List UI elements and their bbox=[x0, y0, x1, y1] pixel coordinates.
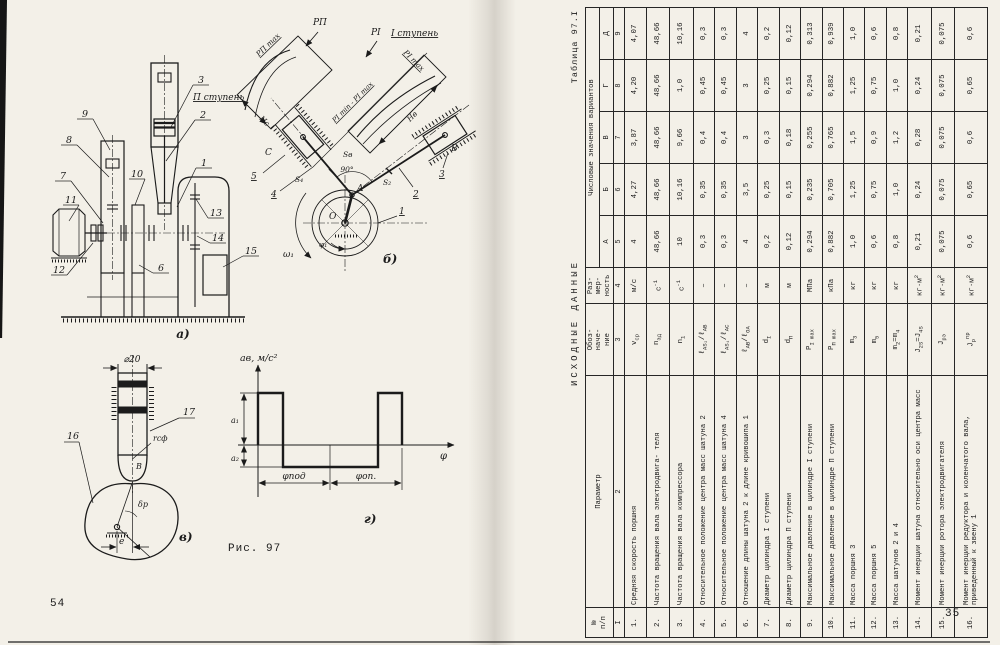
cell-unit: кг·м2 bbox=[908, 268, 932, 304]
cell-num: 14. bbox=[908, 608, 932, 638]
cell-value-g: 0,294 bbox=[801, 60, 822, 112]
column-number: 3 bbox=[614, 304, 625, 376]
cell-param: Диаметр цилиндра П ступени bbox=[779, 376, 800, 608]
cell-param: Максимальное давление в цилиндре П ступе… bbox=[822, 376, 843, 608]
cell-num: 2. bbox=[646, 608, 670, 638]
cell-symbol: PI max bbox=[801, 304, 822, 376]
table-row: 9.Максимальное давление в цилиндре I сту… bbox=[801, 7, 822, 637]
cell-value-v: 0,9 bbox=[865, 112, 886, 164]
p2-force-label: PП bbox=[312, 18, 327, 28]
cell-unit: м bbox=[779, 268, 800, 304]
cell-value-g: 0,45 bbox=[693, 60, 714, 112]
cell-value-g: 1,0 bbox=[886, 60, 907, 112]
cell-value-a: 4 bbox=[736, 216, 757, 268]
cell-num: 11. bbox=[843, 608, 864, 638]
cell-num: 12. bbox=[865, 608, 886, 638]
column-number: 5 bbox=[614, 216, 625, 268]
table-body: 1.Средняя скорость поршняvсрм/с44,273,87… bbox=[625, 7, 988, 637]
cell-unit: м/с bbox=[625, 268, 646, 304]
cell-value-g: 0,25 bbox=[758, 60, 779, 112]
point-a-label: A bbox=[356, 184, 364, 194]
figure-g-acceleration-plot: ав, м/с² φ а₁ а₂ φпод φоп. г) bbox=[228, 345, 475, 550]
cell-value-v: 0,4 bbox=[693, 112, 714, 164]
cell-symbol: nэд bbox=[646, 304, 670, 376]
cell-value-g: 0,45 bbox=[715, 60, 736, 112]
cell-num: 5. bbox=[715, 608, 736, 638]
cell-unit: МПа bbox=[801, 268, 822, 304]
point-c-label: C bbox=[265, 148, 272, 158]
figure-b-kinematic-diagram: П ступень I ступень PП max PП PI PI max … bbox=[185, 5, 485, 305]
part-label-12: 12 bbox=[53, 265, 65, 276]
page-number-left: 54 bbox=[50, 598, 65, 610]
header-variant-a: А bbox=[600, 216, 614, 268]
header-variant-v: В bbox=[600, 112, 614, 164]
figure-g-caption: г) bbox=[364, 512, 376, 526]
part-label-17: 17 bbox=[183, 407, 196, 418]
cell-value-b: 0,15 bbox=[779, 164, 800, 216]
link-3-label: 3 bbox=[439, 170, 445, 180]
y-axis-label: ав, м/с² bbox=[240, 353, 278, 364]
cell-unit: кг bbox=[886, 268, 907, 304]
eccentricity-label: e bbox=[119, 537, 124, 547]
cell-value-v: 0,6 bbox=[955, 112, 988, 164]
cell-param: Частота вращения вала электродвига- теля bbox=[646, 376, 670, 608]
table-row: 13.Масса шатунов 2 и 4m2=m4кг0,81,01,21,… bbox=[886, 7, 907, 637]
cell-value-d: 0,8 bbox=[886, 7, 907, 59]
stage-i-label: I ступень bbox=[390, 29, 438, 39]
cell-value-b: 0,65 bbox=[955, 164, 988, 216]
cell-unit: – bbox=[693, 268, 714, 304]
s4-label: S₄ bbox=[295, 175, 303, 184]
table-row: 2.Частота вращения вала электродвига- те… bbox=[646, 7, 670, 637]
cell-value-b: 0,075 bbox=[931, 164, 955, 216]
table-header-line: ИСХОДНЫЕ ДАННЫЕ Таблица 97.I bbox=[570, 8, 585, 638]
table-row: 3.Частота вращения вала компрессораn1с-1… bbox=[670, 7, 694, 637]
header-variant-d: Д bbox=[600, 7, 614, 59]
cell-value-a: 0,6 bbox=[865, 216, 886, 268]
header-symbol: Обоз-наче-ние bbox=[586, 304, 614, 376]
cell-value-g: 0,075 bbox=[931, 60, 955, 112]
cell-value-g: 0,75 bbox=[865, 60, 886, 112]
cell-value-b: 0,75 bbox=[865, 164, 886, 216]
column-number: I bbox=[614, 608, 625, 638]
cell-unit: м bbox=[758, 268, 779, 304]
cell-symbol: ℓAS₄/ℓAC bbox=[715, 304, 736, 376]
table-row: 12.Масса поршня 5m5кг0,60,750,90,750,6 bbox=[865, 7, 886, 637]
cell-value-a: 1,0 bbox=[843, 216, 864, 268]
cell-value-g: 48,66 bbox=[646, 60, 670, 112]
header-unit: Раз-мер-ность bbox=[586, 268, 614, 304]
cell-value-d: 4,07 bbox=[625, 7, 646, 59]
cell-value-a: 0,3 bbox=[693, 216, 714, 268]
cell-value-d: 0,075 bbox=[931, 7, 955, 59]
part-label-8: 8 bbox=[66, 135, 72, 146]
p-range-label: PI min - PI max bbox=[330, 80, 375, 125]
column-number: 8 bbox=[614, 60, 625, 112]
cell-value-v: 0,28 bbox=[908, 112, 932, 164]
cell-value-d: 10,16 bbox=[670, 7, 694, 59]
cell-value-b: 48,66 bbox=[646, 164, 670, 216]
cell-value-b: 1,25 bbox=[843, 164, 864, 216]
cell-symbol: n1 bbox=[670, 304, 694, 376]
cell-value-a: 0,12 bbox=[779, 216, 800, 268]
cell-symbol: dI bbox=[758, 304, 779, 376]
cell-symbol: ℓAS₂/ℓAB bbox=[693, 304, 714, 376]
cell-value-d: 0,313 bbox=[801, 7, 822, 59]
cell-value-b: 0,24 bbox=[908, 164, 932, 216]
data-table: №п/п Параметр Обоз-наче-ние Раз-мер-ност… bbox=[585, 7, 988, 638]
cell-value-a: 0,294 bbox=[801, 216, 822, 268]
cell-value-b: 0,35 bbox=[715, 164, 736, 216]
column-number: 4 bbox=[614, 268, 625, 304]
cell-value-v: 3,87 bbox=[625, 112, 646, 164]
link-4-label: 4 bbox=[270, 190, 277, 200]
phi1-label: φ₁ bbox=[319, 240, 327, 249]
cell-num: 6. bbox=[736, 608, 757, 638]
cell-value-a: 10 bbox=[670, 216, 694, 268]
column-numbers-row: I23456789 bbox=[614, 7, 625, 637]
cell-value-g: 1,25 bbox=[843, 60, 864, 112]
header-num: №п/п bbox=[586, 608, 614, 638]
cell-value-d: 0,6 bbox=[865, 7, 886, 59]
link-1-label: 1 bbox=[399, 207, 405, 217]
figure-b-caption: б) bbox=[383, 252, 397, 266]
cell-value-v: 0,255 bbox=[801, 112, 822, 164]
cell-value-v: 9,66 bbox=[670, 112, 694, 164]
header-variant-g: Г bbox=[600, 60, 614, 112]
cell-num: 3. bbox=[670, 608, 694, 638]
cell-num: 13. bbox=[886, 608, 907, 638]
cell-symbol: J2S=J4S bbox=[908, 304, 932, 376]
table-row: 10.Максимальное давление в цилиндре П ст… bbox=[822, 7, 843, 637]
cell-value-v: 48,66 bbox=[646, 112, 670, 164]
scanned-book-spread: { "page_left": { "page_number": "54", "f… bbox=[0, 0, 1000, 645]
cell-value-v: 0,4 bbox=[715, 112, 736, 164]
figure-caption: Рис. 97 bbox=[228, 543, 281, 555]
cell-unit: – bbox=[715, 268, 736, 304]
figure-v-caption: в) bbox=[179, 530, 193, 544]
cell-param: Относительное положение центра масс шату… bbox=[693, 376, 714, 608]
cell-param: Диаметр цилиндра I ступени bbox=[758, 376, 779, 608]
column-number: 2 bbox=[614, 376, 625, 608]
cell-value-g: 3 bbox=[736, 60, 757, 112]
stage-ii-label: П ступень bbox=[192, 93, 245, 103]
table-row: 5.Относительное положение центра масс ша… bbox=[715, 7, 736, 637]
cell-value-b: 0,25 bbox=[758, 164, 779, 216]
cell-value-g: 1,0 bbox=[670, 60, 694, 112]
a2-label: а₂ bbox=[231, 454, 239, 463]
point-b-label-v: В bbox=[135, 462, 142, 471]
column-number: 7 bbox=[614, 112, 625, 164]
figure-v-cam-follower: ⌀20 17 rсф В δр 16 e в) bbox=[55, 335, 235, 570]
table-row: 6.Отношение длины шатуна 2 к длине криво… bbox=[736, 7, 757, 637]
cell-value-d: 0,21 bbox=[908, 7, 932, 59]
stroke-hc-label: Нс bbox=[257, 113, 272, 128]
cell-value-b: 0,705 bbox=[822, 164, 843, 216]
cell-symbol: dП bbox=[779, 304, 800, 376]
point-b-label: В bbox=[450, 144, 458, 154]
cell-value-b: 0,235 bbox=[801, 164, 822, 216]
p1max-label: PI max bbox=[401, 47, 427, 73]
table-row: 7.Диаметр цилиндра I ступениdIм0,20,250,… bbox=[758, 7, 779, 637]
link-5-label: 5 bbox=[251, 172, 257, 182]
cell-value-a: 0,2 bbox=[758, 216, 779, 268]
table-row: 8.Диаметр цилиндра П ступениdПм0,120,150… bbox=[779, 7, 800, 637]
cell-num: 4. bbox=[693, 608, 714, 638]
cell-value-a: 0,8 bbox=[886, 216, 907, 268]
cell-value-b: 4,27 bbox=[625, 164, 646, 216]
cell-value-a: 4 bbox=[625, 216, 646, 268]
cell-value-v: 1,5 bbox=[843, 112, 864, 164]
scan-left-edge bbox=[0, 0, 7, 338]
cell-param: Масса поршня 5 bbox=[865, 376, 886, 608]
omega1-label: ω₁ bbox=[283, 250, 294, 260]
phi-fall-label: φоп. bbox=[356, 472, 377, 482]
cell-value-b: 10,16 bbox=[670, 164, 694, 216]
r-sphere-label: rсф bbox=[153, 434, 168, 443]
cell-num: 10. bbox=[822, 608, 843, 638]
rotated-table-container: ИСХОДНЫЕ ДАННЫЕ Таблица 97.I №п/п Параме… bbox=[570, 8, 990, 638]
cell-unit: – bbox=[736, 268, 757, 304]
table-row: 11.Масса поршня 3m3кг1,01,251,51,251,0 bbox=[843, 7, 864, 637]
cell-value-d: 0,939 bbox=[822, 7, 843, 59]
cell-unit: с-1 bbox=[670, 268, 694, 304]
cell-value-g: 0,65 bbox=[955, 60, 988, 112]
cell-value-a: 0,3 bbox=[715, 216, 736, 268]
cell-value-g: 0,15 bbox=[779, 60, 800, 112]
diameter-20-label: ⌀20 bbox=[124, 355, 141, 365]
cell-value-d: 48,66 bbox=[646, 7, 670, 59]
cell-num: 7. bbox=[758, 608, 779, 638]
cell-unit: с-1 bbox=[646, 268, 670, 304]
cell-param: Частота вращения вала компрессора bbox=[670, 376, 694, 608]
table-number-caption: Таблица 97.I bbox=[570, 10, 580, 83]
cell-value-v: 0,765 bbox=[822, 112, 843, 164]
cell-num: 1. bbox=[625, 608, 646, 638]
table-row: 14.Момент инерции шатуна относительно ос… bbox=[908, 7, 932, 637]
cell-symbol: ℓAB/ℓOA bbox=[736, 304, 757, 376]
column-number: 9 bbox=[614, 7, 625, 59]
cell-value-g: 4,20 bbox=[625, 60, 646, 112]
part-label-16: 16 bbox=[67, 431, 79, 442]
a1-label: а₁ bbox=[231, 416, 239, 425]
cell-value-d: 0,3 bbox=[693, 7, 714, 59]
cell-value-d: 0,2 bbox=[758, 7, 779, 59]
link-2-label: 2 bbox=[412, 190, 419, 200]
header-variant-b: Б bbox=[600, 164, 614, 216]
point-o-label: O bbox=[329, 212, 337, 222]
cell-symbol: Jрпр bbox=[955, 304, 988, 376]
p1-force-label: PI bbox=[370, 28, 381, 38]
cell-value-v: 0,18 bbox=[779, 112, 800, 164]
delta-r-label: δр bbox=[138, 500, 148, 509]
cell-value-d: 0,3 bbox=[715, 7, 736, 59]
table-row: 15.Момент инерции ротора электродвигател… bbox=[931, 7, 955, 637]
page-number-right: 35 bbox=[945, 608, 960, 620]
cell-unit: кг·м2 bbox=[955, 268, 988, 304]
cell-param: Момент инерции ротора электродвигателя bbox=[931, 376, 955, 608]
cell-param: Момент инерции редуктора и коленчатого в… bbox=[955, 376, 988, 608]
cell-value-v: 0,075 bbox=[931, 112, 955, 164]
phi-rise-label: φпод bbox=[282, 472, 306, 482]
cell-value-a: 0,21 bbox=[908, 216, 932, 268]
cell-symbol: vср bbox=[625, 304, 646, 376]
cell-symbol: m3 bbox=[843, 304, 864, 376]
part-label-11: 11 bbox=[65, 195, 77, 206]
cell-value-g: 0,24 bbox=[908, 60, 932, 112]
cell-param: Момент инерции шатуна относительно оси ц… bbox=[908, 376, 932, 608]
cell-value-v: 1,2 bbox=[886, 112, 907, 164]
cell-param: Относительное положение центра масс шату… bbox=[715, 376, 736, 608]
part-label-9: 9 bbox=[82, 109, 88, 120]
cell-value-a: 0,6 bbox=[955, 216, 988, 268]
cell-unit: кг bbox=[865, 268, 886, 304]
cell-param: Масса поршня 3 bbox=[843, 376, 864, 608]
table-row: 1.Средняя скорость поршняvсрм/с44,273,87… bbox=[625, 7, 646, 637]
cell-value-g: 0,882 bbox=[822, 60, 843, 112]
cell-value-v: 3 bbox=[736, 112, 757, 164]
table-title: ИСХОДНЫЕ ДАННЫЕ bbox=[570, 8, 580, 638]
cell-num: 9. bbox=[801, 608, 822, 638]
cell-symbol: m5 bbox=[865, 304, 886, 376]
cell-value-v: 0,3 bbox=[758, 112, 779, 164]
header-values-group: Числовые значения вариантов bbox=[586, 7, 600, 267]
cell-value-a: 0,882 bbox=[822, 216, 843, 268]
cell-value-a: 0,075 bbox=[931, 216, 955, 268]
cell-unit: кПа bbox=[822, 268, 843, 304]
sb-label: Sв bbox=[343, 150, 353, 159]
cell-value-b: 0,35 bbox=[693, 164, 714, 216]
s2-label: S₂ bbox=[383, 178, 391, 187]
cell-unit: кг·м2 bbox=[931, 268, 955, 304]
x-axis-label: φ bbox=[440, 451, 447, 462]
table-row: 16.Момент инерции редуктора и коленчатог… bbox=[955, 7, 988, 637]
part-label-7: 7 bbox=[60, 171, 67, 182]
cell-param: Максимальное давление в цилиндре I ступе… bbox=[801, 376, 822, 608]
part-label-10: 10 bbox=[131, 169, 143, 180]
cell-param: Средняя скорость поршня bbox=[625, 376, 646, 608]
cell-symbol: Jрэ bbox=[931, 304, 955, 376]
cell-symbol: PП max bbox=[822, 304, 843, 376]
cell-value-b: 1,0 bbox=[886, 164, 907, 216]
cell-symbol: m2=m4 bbox=[886, 304, 907, 376]
cell-value-d: 1,0 bbox=[843, 7, 864, 59]
cell-value-a: 48,66 bbox=[646, 216, 670, 268]
header-param: Параметр bbox=[586, 376, 614, 608]
cell-param: Масса шатунов 2 и 4 bbox=[886, 376, 907, 608]
cell-value-d: 0,12 bbox=[779, 7, 800, 59]
column-number: 6 bbox=[614, 164, 625, 216]
cell-unit: кг bbox=[843, 268, 864, 304]
cell-value-b: 3,5 bbox=[736, 164, 757, 216]
cell-value-d: 0,6 bbox=[955, 7, 988, 59]
cell-num: 8. bbox=[779, 608, 800, 638]
cell-param: Отношение длины шатуна 2 к длине кривоши… bbox=[736, 376, 757, 608]
stroke-hb-label: Нв bbox=[404, 109, 419, 124]
cell-value-d: 4 bbox=[736, 7, 757, 59]
angle-90-label: 90° bbox=[340, 165, 354, 174]
part-label-6: 6 bbox=[158, 263, 164, 274]
table-row: 4.Относительное положение центра масс ша… bbox=[693, 7, 714, 637]
